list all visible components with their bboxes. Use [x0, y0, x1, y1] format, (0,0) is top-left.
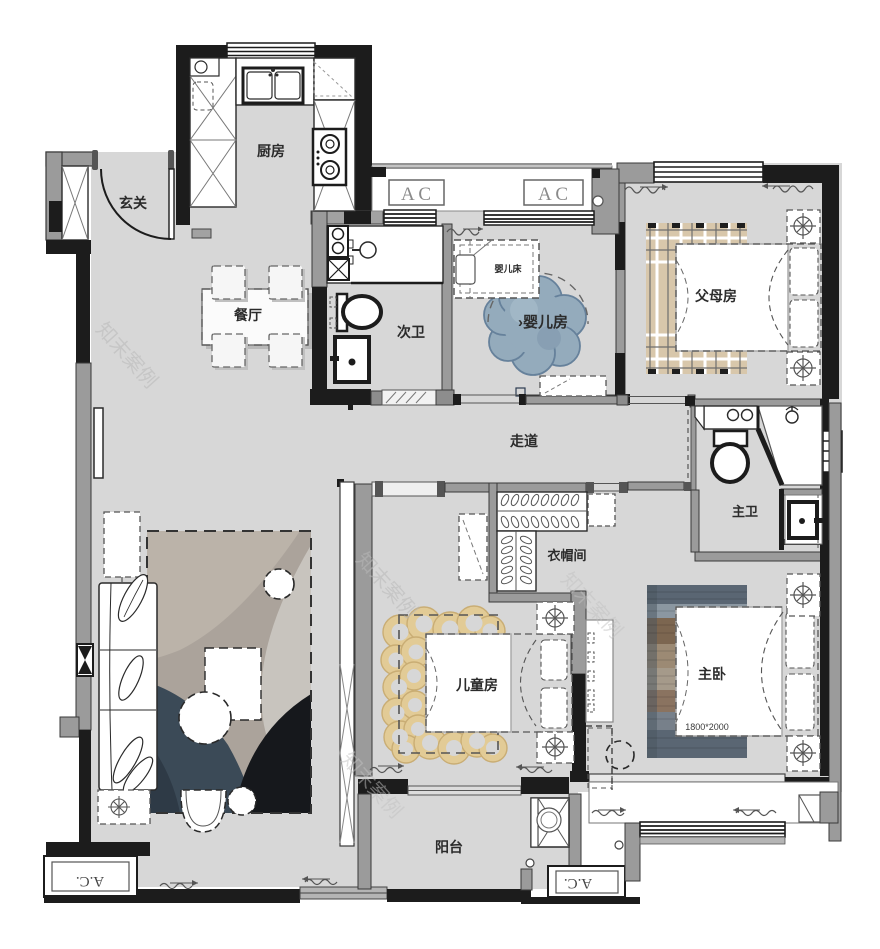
svg-text:餐厅: 餐厅: [233, 307, 262, 323]
svg-text:玄关: 玄关: [119, 195, 147, 211]
svg-text:次卫: 次卫: [397, 324, 425, 340]
svg-text:婴儿床: 婴儿床: [494, 263, 522, 274]
svg-text:走道: 走道: [510, 433, 538, 449]
svg-text:主卫: 主卫: [732, 504, 758, 519]
svg-text:1800*2000: 1800*2000: [685, 722, 729, 732]
svg-text:主卧: 主卧: [698, 666, 726, 682]
svg-text:A.C.: A.C.: [76, 873, 104, 889]
svg-text:A C: A C: [538, 184, 568, 205]
svg-text:A.C.: A.C.: [564, 875, 592, 891]
svg-text:儿童房: 儿童房: [455, 677, 498, 693]
svg-text:父母房: 父母房: [694, 288, 737, 304]
svg-text:衣帽间: 衣帽间: [547, 548, 586, 563]
svg-text:›婴儿房: ›婴儿房: [518, 313, 568, 331]
svg-text:阳台: 阳台: [435, 839, 463, 855]
svg-text:A C: A C: [401, 184, 431, 205]
svg-text:厨房: 厨房: [257, 143, 285, 159]
